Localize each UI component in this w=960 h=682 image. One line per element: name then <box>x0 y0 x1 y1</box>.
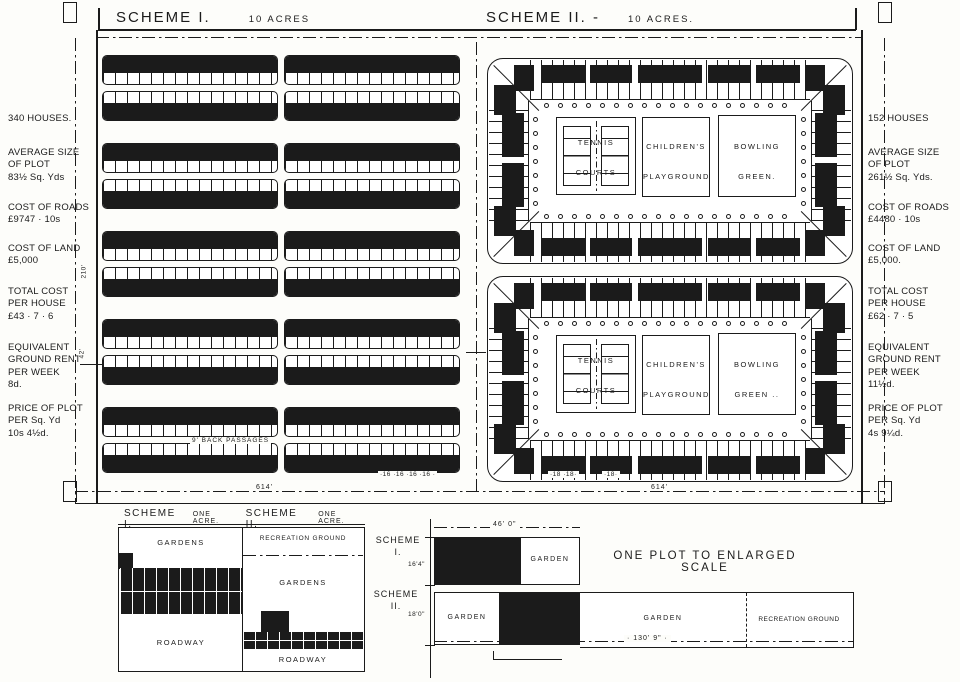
dim-42ft: 42' <box>79 344 86 364</box>
tree-icon <box>698 103 703 108</box>
tree-icon <box>801 117 806 122</box>
tree-icon <box>533 173 538 178</box>
scheme2-stat-houses: 152 HOUSES <box>868 113 960 125</box>
house-block <box>494 303 516 333</box>
enlarged-s2-garden-left: GARDEN <box>434 592 500 645</box>
tree-icon <box>586 214 591 219</box>
house-block <box>756 456 800 474</box>
house-terrace <box>103 279 277 296</box>
house-block <box>261 611 289 633</box>
scheme1-acreage: 10 ACRES <box>249 14 310 25</box>
tree-icon <box>533 159 538 164</box>
recreation-divider <box>746 593 747 647</box>
tree-icon <box>801 405 806 410</box>
terrace-row <box>102 143 278 173</box>
garden-label: GARDEN <box>435 614 499 621</box>
tree-icon <box>586 432 591 437</box>
terrace-row <box>102 267 278 297</box>
tree-icon <box>782 432 787 437</box>
garden-plots <box>103 356 277 367</box>
terrace-row <box>102 407 278 437</box>
scheme2-stat-plot-size: AVERAGE SIZE OF PLOT 261½ Sq. Yds. <box>868 147 960 184</box>
scheme2-superblock-top: TENNIS COURTS CHILDREN'S PLAYGROUND BOWL… <box>487 58 853 264</box>
garden-plots <box>103 180 277 191</box>
tree-icon <box>754 103 759 108</box>
scheme1-plan <box>100 50 462 482</box>
plan-border-bottom <box>75 503 885 504</box>
terrace-row <box>102 443 278 473</box>
tree-icon <box>544 321 549 326</box>
house-block <box>542 238 586 256</box>
house-block <box>494 206 516 236</box>
tree-icon <box>801 363 806 368</box>
house-block <box>708 238 750 256</box>
tree-icon <box>586 103 591 108</box>
scheme1-heading: SCHEME I. 10 ACRES <box>116 9 310 26</box>
house-block <box>502 381 524 425</box>
house-block <box>590 65 632 83</box>
house-terrace <box>285 56 459 73</box>
dim-plot-length: · 130' 9" · <box>624 635 671 642</box>
tree-icon <box>628 321 633 326</box>
tree-icon <box>614 321 619 326</box>
house-block <box>590 283 632 301</box>
tree-icon <box>628 103 633 108</box>
garden-label: GARDEN <box>580 615 746 622</box>
dim-18s-a: ·18 ·18· <box>548 471 579 478</box>
one-acre-scheme2-sub: ONE ACRE. <box>318 511 361 525</box>
house-terrace <box>103 320 277 337</box>
garden-plots <box>285 337 459 348</box>
tree-icon <box>782 321 787 326</box>
tree-icon <box>670 214 675 219</box>
tree-icon <box>656 214 661 219</box>
tree-icon <box>684 321 689 326</box>
scheme2-title: SCHEME II. - <box>486 9 600 26</box>
tree-icon <box>801 159 806 164</box>
house-block <box>119 553 133 569</box>
one-acre-s2-gardens: GARDENS <box>243 578 363 587</box>
tree-icon <box>628 214 633 219</box>
terrace-row <box>284 91 460 121</box>
enlarged-s1-house <box>434 537 520 585</box>
house-terrace <box>103 367 277 384</box>
terrace-row <box>284 267 460 297</box>
garden-plots <box>103 444 277 455</box>
one-acre-s1-roadway: ROADWAY <box>119 638 243 647</box>
tree-icon <box>656 432 661 437</box>
terrace-row <box>102 55 278 85</box>
garden-plots <box>285 268 459 279</box>
terrace-row <box>284 55 460 85</box>
scheme2-superblock-bottom: TENNIS COURTS CHILDREN'S PLAYGROUND BOWL… <box>487 276 853 482</box>
dim-plot-width: 46' 0" <box>490 521 519 528</box>
tree-icon <box>740 214 745 219</box>
tree-icon <box>533 187 538 192</box>
tree-icon <box>768 321 773 326</box>
scale-mark-line <box>493 659 562 660</box>
one-acre-s2-house-band <box>243 632 363 649</box>
dim-depth-scheme2: 18'0" <box>406 611 427 618</box>
house-block <box>638 65 702 83</box>
scheme2-stat-plot-price: PRICE OF PLOT PER Sq. Yd 4s 9¼d. <box>868 403 960 440</box>
tree-icon <box>712 214 717 219</box>
scheme1-stat-roads: COST OF ROADS £9747 · 10s <box>8 202 100 227</box>
garden-plots <box>103 161 277 172</box>
scheme2-heading: SCHEME II. - 10 ACRES. <box>486 9 694 26</box>
dim-614-scheme2: 614' <box>648 484 671 491</box>
house-block <box>756 238 800 256</box>
tennis-courts-top: TENNIS COURTS <box>556 117 636 195</box>
plan-border-right <box>861 30 863 503</box>
tree-icon <box>698 432 703 437</box>
tree-icon <box>712 103 717 108</box>
terrace-row <box>284 319 460 349</box>
house-terrace <box>285 320 459 337</box>
tree-icon <box>533 405 538 410</box>
house-block <box>638 238 702 256</box>
house-terrace <box>285 367 459 384</box>
title-bracket-right <box>855 8 857 30</box>
house-terrace <box>103 408 277 425</box>
tree-icon <box>801 187 806 192</box>
tree-icon <box>670 321 675 326</box>
scheme1-stat-ground-rent: EQUIVALENT GROUND RENT PER WEEK 8d. <box>8 342 100 391</box>
tree-icon <box>740 103 745 108</box>
terrace-row <box>102 231 278 261</box>
garden-plots <box>285 161 459 172</box>
garden-plots <box>285 73 459 84</box>
one-acre-scheme1-sub: ONE ACRE. <box>193 511 236 525</box>
tree-icon <box>533 363 538 368</box>
scheme1-stat-plot-size: AVERAGE SIZE OF PLOT 83½ Sq. Yds <box>8 147 100 184</box>
house-block <box>815 163 837 207</box>
tree-icon <box>642 214 647 219</box>
title-bracket-left <box>98 8 100 30</box>
house-block <box>815 113 837 157</box>
tree-icon <box>754 321 759 326</box>
tree-icon <box>572 321 577 326</box>
garden-plots <box>103 73 277 84</box>
road-width-arrow-middle <box>466 352 486 353</box>
playground-label: CHILDREN'S PLAYGROUND <box>643 336 709 410</box>
scheme2-stat-ground-rent: EQUIVALENT GROUND RENT PER WEEK 11½d. <box>868 342 960 391</box>
dim-tick <box>425 585 435 586</box>
tree-icon <box>586 321 591 326</box>
garden-plots <box>103 92 277 103</box>
one-acre-divider <box>242 528 243 671</box>
terrace-row <box>284 143 460 173</box>
tree-icon <box>544 214 549 219</box>
bowling-green-top: BOWLING GREEN. <box>718 115 796 197</box>
tree-icon <box>801 173 806 178</box>
garden-plots <box>285 356 459 367</box>
house-block <box>815 381 837 425</box>
tree-icon <box>801 145 806 150</box>
tree-icon <box>533 335 538 340</box>
tree-icon <box>726 103 731 108</box>
house-terrace <box>103 455 277 472</box>
tree-icon <box>642 103 647 108</box>
garden-plots <box>103 425 277 436</box>
scheme1-title: SCHEME I. <box>116 9 211 26</box>
house-block <box>502 163 524 207</box>
house-terrace <box>103 103 277 120</box>
tree-icon <box>712 321 717 326</box>
tree-icon <box>558 103 563 108</box>
tree-icon <box>684 214 689 219</box>
house-block <box>708 65 750 83</box>
dim-16s: ·16 ·16 ·16 ·16 · <box>378 471 437 478</box>
one-acre-s2-recreation: RECREATION GROUND <box>243 535 363 542</box>
recreation-boundary-line <box>243 555 363 556</box>
garden-plots <box>285 92 459 103</box>
tree-icon <box>670 432 675 437</box>
house-block <box>494 85 516 115</box>
road-centerline-middle <box>476 42 477 494</box>
tree-icon <box>740 432 745 437</box>
enlarged-title: ONE PLOT TO ENLARGED SCALE <box>600 550 810 574</box>
tree-icon <box>600 214 605 219</box>
childrens-playground-top: CHILDREN'S PLAYGROUND <box>642 117 710 197</box>
tree-icon <box>533 349 538 354</box>
tree-icon <box>740 321 745 326</box>
tree-icon <box>533 419 538 424</box>
house-block <box>823 303 845 333</box>
bowling-green-label: BOWLING GREEN .. <box>719 334 795 410</box>
house-block <box>823 424 845 454</box>
tree-icon <box>726 214 731 219</box>
tree-icon <box>642 321 647 326</box>
tennis-courts-label: TENNIS COURTS <box>557 336 635 406</box>
tree-icon <box>614 103 619 108</box>
tree-icon <box>768 432 773 437</box>
drawing-sheet: SCHEME I. 10 ACRES SCHEME II. - 10 ACRES… <box>0 0 960 682</box>
house-block <box>823 85 845 115</box>
house-block <box>542 283 586 301</box>
enlarged-dim-line-vertical <box>430 519 431 678</box>
house-block <box>708 456 750 474</box>
tree-icon <box>698 214 703 219</box>
one-acre-s1-gardens: GARDENS <box>119 538 243 547</box>
terrace-row <box>284 355 460 385</box>
tree-icon <box>726 432 731 437</box>
scheme2-stat-roads: COST OF ROADS £4480 · 10s <box>868 202 960 227</box>
terrace-row <box>102 355 278 385</box>
dim-depth-scheme1: 16'4" <box>406 561 427 568</box>
house-block <box>708 283 750 301</box>
scheme2-acreage: 10 ACRES. <box>628 14 694 25</box>
tree-icon <box>533 391 538 396</box>
house-terrace <box>103 56 277 73</box>
tree-icon <box>726 321 731 326</box>
scheme2-stat-total-cost: TOTAL COST PER HOUSE £62 · 7 · 5 <box>868 286 960 323</box>
house-terrace <box>285 455 459 472</box>
house-block <box>638 283 702 301</box>
dimension-line-bottom <box>75 491 885 492</box>
one-acre-heading: SCHEME I. ONE ACRE. SCHEME II. ONE ACRE. <box>118 506 365 525</box>
one-acre-s2-roadway: ROADWAY <box>243 655 363 664</box>
title-underline <box>98 29 856 31</box>
enlarged-s2-house <box>500 592 580 645</box>
tree-icon <box>754 432 759 437</box>
garden-plots <box>285 249 459 260</box>
dim-tick <box>425 645 435 646</box>
house-block <box>590 238 632 256</box>
tree-icon <box>656 103 661 108</box>
dim-614-scheme1: 614' <box>253 484 276 491</box>
tree-icon <box>572 432 577 437</box>
garden-plots <box>285 444 459 455</box>
tree-icon <box>544 432 549 437</box>
tree-icon <box>801 201 806 206</box>
tree-icon <box>600 103 605 108</box>
terrace-row <box>284 443 460 473</box>
enlarged-s1-garden: GARDEN <box>520 537 580 585</box>
terrace-row <box>102 179 278 209</box>
tree-icon <box>614 432 619 437</box>
tree-icon <box>533 377 538 382</box>
tree-icon <box>801 131 806 136</box>
garden-label: GARDEN <box>521 556 579 563</box>
tree-icon <box>768 214 773 219</box>
recreation-label: RECREATION GROUND <box>748 616 850 623</box>
back-passages-label: 9' BACK PASSAGES <box>190 437 271 444</box>
garden-plots <box>103 249 277 260</box>
tree-icon <box>600 321 605 326</box>
enlarged-scheme1-label: SCHEME I. <box>375 535 421 558</box>
bowling-green-bottom: BOWLING GREEN .. <box>718 333 796 415</box>
house-block <box>756 65 800 83</box>
house-terrace <box>285 144 459 161</box>
house-terrace <box>285 103 459 120</box>
house-terrace <box>285 232 459 249</box>
tree-icon <box>533 145 538 150</box>
one-acre-diagram: GARDENS ROADWAY RECREATION GROUND GARDEN… <box>118 527 365 672</box>
house-block <box>638 456 702 474</box>
house-block <box>823 206 845 236</box>
tree-icon <box>754 214 759 219</box>
tree-icon <box>572 103 577 108</box>
tree-icon <box>782 214 787 219</box>
tree-icon <box>782 103 787 108</box>
garden-plots <box>285 425 459 436</box>
tree-icon <box>533 201 538 206</box>
tree-icon <box>801 419 806 424</box>
dim-210ft: 210' <box>81 260 88 284</box>
house-block <box>502 113 524 157</box>
bowling-green-label: BOWLING GREEN. <box>719 116 795 192</box>
tree-icon <box>801 377 806 382</box>
tree-icon <box>712 432 717 437</box>
tree-icon <box>684 103 689 108</box>
tree-icon <box>656 321 661 326</box>
tree-icon <box>558 321 563 326</box>
tree-icon <box>600 432 605 437</box>
tree-icon <box>801 391 806 396</box>
tree-icon <box>558 214 563 219</box>
dim-18s-b: ·18· <box>602 471 620 478</box>
tree-icon <box>614 214 619 219</box>
tree-icon <box>628 432 633 437</box>
childrens-playground-bottom: CHILDREN'S PLAYGROUND <box>642 335 710 415</box>
tree-icon <box>533 117 538 122</box>
tree-icon <box>558 432 563 437</box>
tree-icon <box>684 432 689 437</box>
garden-plots <box>285 180 459 191</box>
terrace-row <box>284 231 460 261</box>
road-centerline-top <box>96 37 861 38</box>
tree-icon <box>533 131 538 136</box>
house-terrace <box>285 408 459 425</box>
tennis-courts-label: TENNIS COURTS <box>557 118 635 188</box>
tree-icon <box>768 103 773 108</box>
house-block <box>756 283 800 301</box>
corner-mark-top-right <box>878 2 892 23</box>
house-terrace <box>103 144 277 161</box>
tennis-courts-bottom: TENNIS COURTS <box>556 335 636 413</box>
house-block <box>502 331 524 375</box>
scheme1-stat-houses: 340 HOUSES. <box>8 113 100 125</box>
terrace-row <box>102 319 278 349</box>
house-terrace <box>285 191 459 208</box>
terrace-row <box>284 179 460 209</box>
house-terrace <box>103 191 277 208</box>
one-acre-s1-house-band <box>120 568 242 614</box>
playground-label: CHILDREN'S PLAYGROUND <box>643 118 709 192</box>
scheme1-stat-total-cost: TOTAL COST PER HOUSE £43 · 7 · 6 <box>8 286 100 323</box>
terrace-row <box>284 407 460 437</box>
house-block <box>815 331 837 375</box>
house-block <box>494 424 516 454</box>
corner-mark-top-left <box>63 2 77 23</box>
garden-plots <box>103 337 277 348</box>
house-terrace <box>285 279 459 296</box>
tree-icon <box>801 335 806 340</box>
house-block <box>542 65 586 83</box>
garden-plots <box>103 268 277 279</box>
enlarged-scheme2-label: SCHEME II. <box>373 589 419 612</box>
enlarged-s2-long-strip: GARDEN RECREATION GROUND <box>580 592 854 648</box>
tree-icon <box>698 321 703 326</box>
tree-icon <box>642 432 647 437</box>
tree-icon <box>670 103 675 108</box>
tree-icon <box>572 214 577 219</box>
tree-icon <box>544 103 549 108</box>
house-terrace <box>103 232 277 249</box>
scheme1-stat-plot-price: PRICE OF PLOT PER Sq. Yd 10s 4½d. <box>8 403 100 440</box>
terrace-row <box>102 91 278 121</box>
scheme2-stat-land: COST OF LAND £5,000. <box>868 243 960 268</box>
tree-icon <box>801 349 806 354</box>
